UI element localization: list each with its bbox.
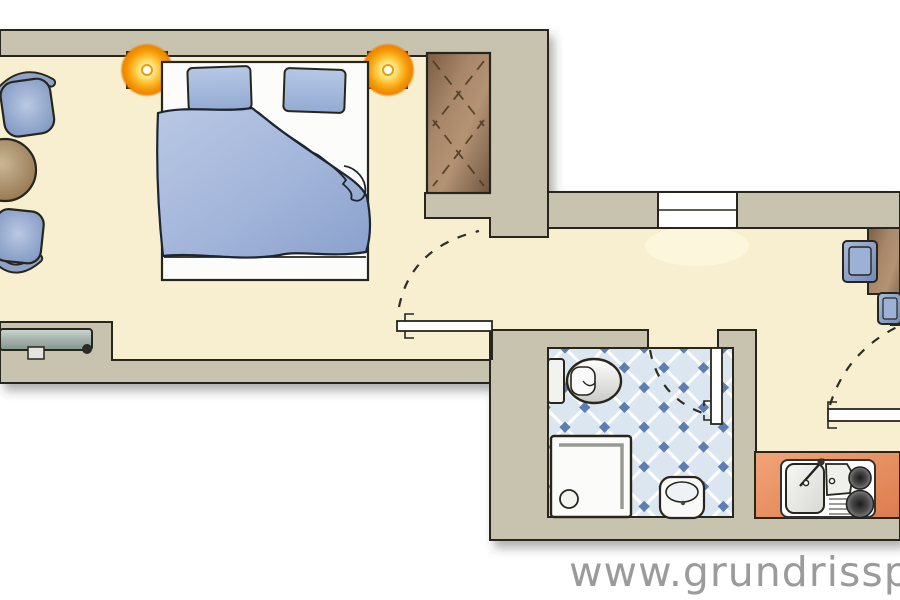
- double-bed: [157, 62, 370, 280]
- stove-burner-small: [849, 467, 871, 489]
- ceiling-lamp-2: [361, 43, 415, 97]
- wall-top-right: [737, 192, 900, 228]
- armchair-1: [0, 73, 58, 138]
- stove-burner-large: [847, 491, 874, 518]
- washbasin: [660, 477, 704, 518]
- shower: [551, 436, 631, 517]
- watermark-text: www.grundrisspro: [569, 548, 900, 596]
- desk-chair-2: [878, 293, 900, 324]
- wardrobe: [427, 53, 490, 193]
- floor-plan-page: www.grundrisspro: [0, 0, 900, 600]
- armchair-2: [0, 208, 45, 271]
- toilet-tank: [548, 359, 564, 403]
- kitchenette: [755, 452, 900, 518]
- pillow-right: [283, 68, 345, 113]
- wall-hallway-north: [548, 192, 658, 228]
- toilet: [548, 359, 621, 403]
- desk-chair-1: [843, 241, 877, 282]
- shower-drain: [560, 490, 578, 508]
- sink-basin: [786, 464, 824, 513]
- bathroom-door-threshold: [648, 328, 718, 350]
- window-light: [645, 226, 749, 266]
- floor-plan-drawing: [0, 0, 900, 600]
- pillow-left: [187, 66, 251, 111]
- door-leaf: [828, 409, 900, 421]
- bedroom-passage-floor: [490, 235, 548, 332]
- door-leaf: [397, 321, 492, 331]
- window: [658, 192, 737, 228]
- building: [0, 30, 900, 540]
- door-leaf: [711, 348, 722, 424]
